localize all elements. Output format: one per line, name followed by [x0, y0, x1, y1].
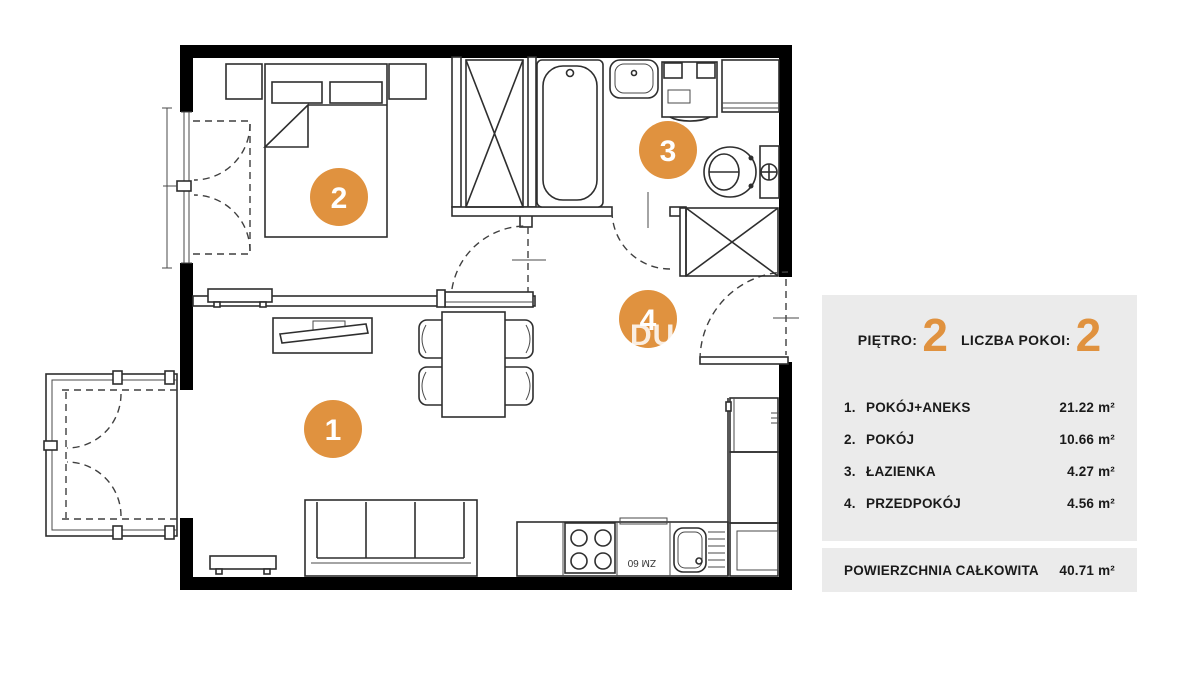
- balcony: [44, 371, 178, 539]
- room-row: 1. POKÓJ+ANEKS 21.22 m²: [844, 391, 1115, 423]
- room-marker-1: 1: [304, 400, 362, 458]
- room-list: 1. POKÓJ+ANEKS 21.22 m² 2. POKÓJ 10.66 m…: [822, 391, 1137, 519]
- closet-wardrobe: [466, 60, 523, 207]
- fridge: [726, 398, 779, 576]
- floor-value: 2: [922, 315, 948, 355]
- bedroom-window: [162, 108, 250, 268]
- toilet: [704, 146, 779, 198]
- bathroom-door: [612, 192, 670, 269]
- room-marker-2: 2: [310, 168, 368, 226]
- rooms-count-group: LICZBA POKOI: 2: [961, 315, 1101, 355]
- stove: [565, 523, 615, 573]
- room-area: 4.56 m²: [1067, 496, 1115, 511]
- room-number: 4.: [844, 496, 866, 511]
- dishwasher: ZM 60: [620, 518, 667, 568]
- sideboard: [437, 290, 533, 307]
- room-name: PRZEDPOKÓJ: [866, 496, 1067, 511]
- room-area: 4.27 m²: [1067, 464, 1115, 479]
- svg-text:2: 2: [331, 182, 348, 215]
- room-area: 10.66 m²: [1059, 432, 1115, 447]
- floor-label: PIĘTRO:: [858, 332, 918, 355]
- bathroom-sink: [610, 60, 658, 98]
- total-area-value: 40.71 m²: [1059, 563, 1115, 578]
- tv-cabinet: [273, 318, 372, 353]
- watermark-text: DU: [630, 319, 675, 352]
- kitchen-sink: [674, 528, 725, 572]
- washing-machine: [662, 62, 717, 121]
- rooms-count-label: LICZBA POKOI:: [961, 332, 1071, 355]
- room-row: 3. ŁAZIENKA 4.27 m²: [844, 455, 1115, 487]
- entrance-door: [700, 272, 799, 364]
- kitchen-corner-cabinet: [730, 523, 778, 576]
- sofa: [305, 500, 477, 576]
- room-name: ŁAZIENKA: [866, 464, 1067, 479]
- floor-plan-page: ZM 60 1 2 3 4 DU: [0, 0, 1200, 668]
- panel-header: PIĘTRO: 2 LICZBA POKOI: 2: [822, 295, 1137, 355]
- room-name: POKÓJ: [866, 432, 1059, 447]
- room-area: 21.22 m²: [1059, 400, 1115, 415]
- bedroom-door: [451, 226, 546, 301]
- rooms-count-value: 2: [1076, 315, 1102, 355]
- room-row: 2. POKÓJ 10.66 m²: [844, 423, 1115, 455]
- dishwasher-label: ZM 60: [627, 557, 656, 568]
- total-area-label: POWIERZCHNIA CAŁKOWITA: [844, 563, 1039, 578]
- info-panel: PIĘTRO: 2 LICZBA POKOI: 2 1. POKÓJ+ANEKS…: [822, 295, 1137, 541]
- nightstand-right: [389, 64, 426, 99]
- floor-group: PIĘTRO: 2: [858, 315, 948, 355]
- room-number: 2.: [844, 432, 866, 447]
- svg-text:1: 1: [325, 414, 342, 447]
- room-name: POKÓJ+ANEKS: [866, 400, 1059, 415]
- nightstand-left: [226, 64, 262, 99]
- svg-text:3: 3: [660, 135, 677, 168]
- radiator-living: [210, 556, 276, 574]
- hallway-wardrobe: [680, 208, 778, 276]
- total-area-bar: POWIERZCHNIA CAŁKOWITA 40.71 m²: [822, 548, 1137, 592]
- room-number: 3.: [844, 464, 866, 479]
- room-marker-3: 3: [639, 121, 697, 179]
- duct-shaft: [722, 60, 779, 112]
- kitchen-cabinet-side: [730, 452, 778, 523]
- room-row: 4. PRZEDPOKÓJ 4.56 m²: [844, 487, 1115, 519]
- dining-table-set: [419, 312, 533, 417]
- room-number: 1.: [844, 400, 866, 415]
- bathtub: [537, 60, 603, 207]
